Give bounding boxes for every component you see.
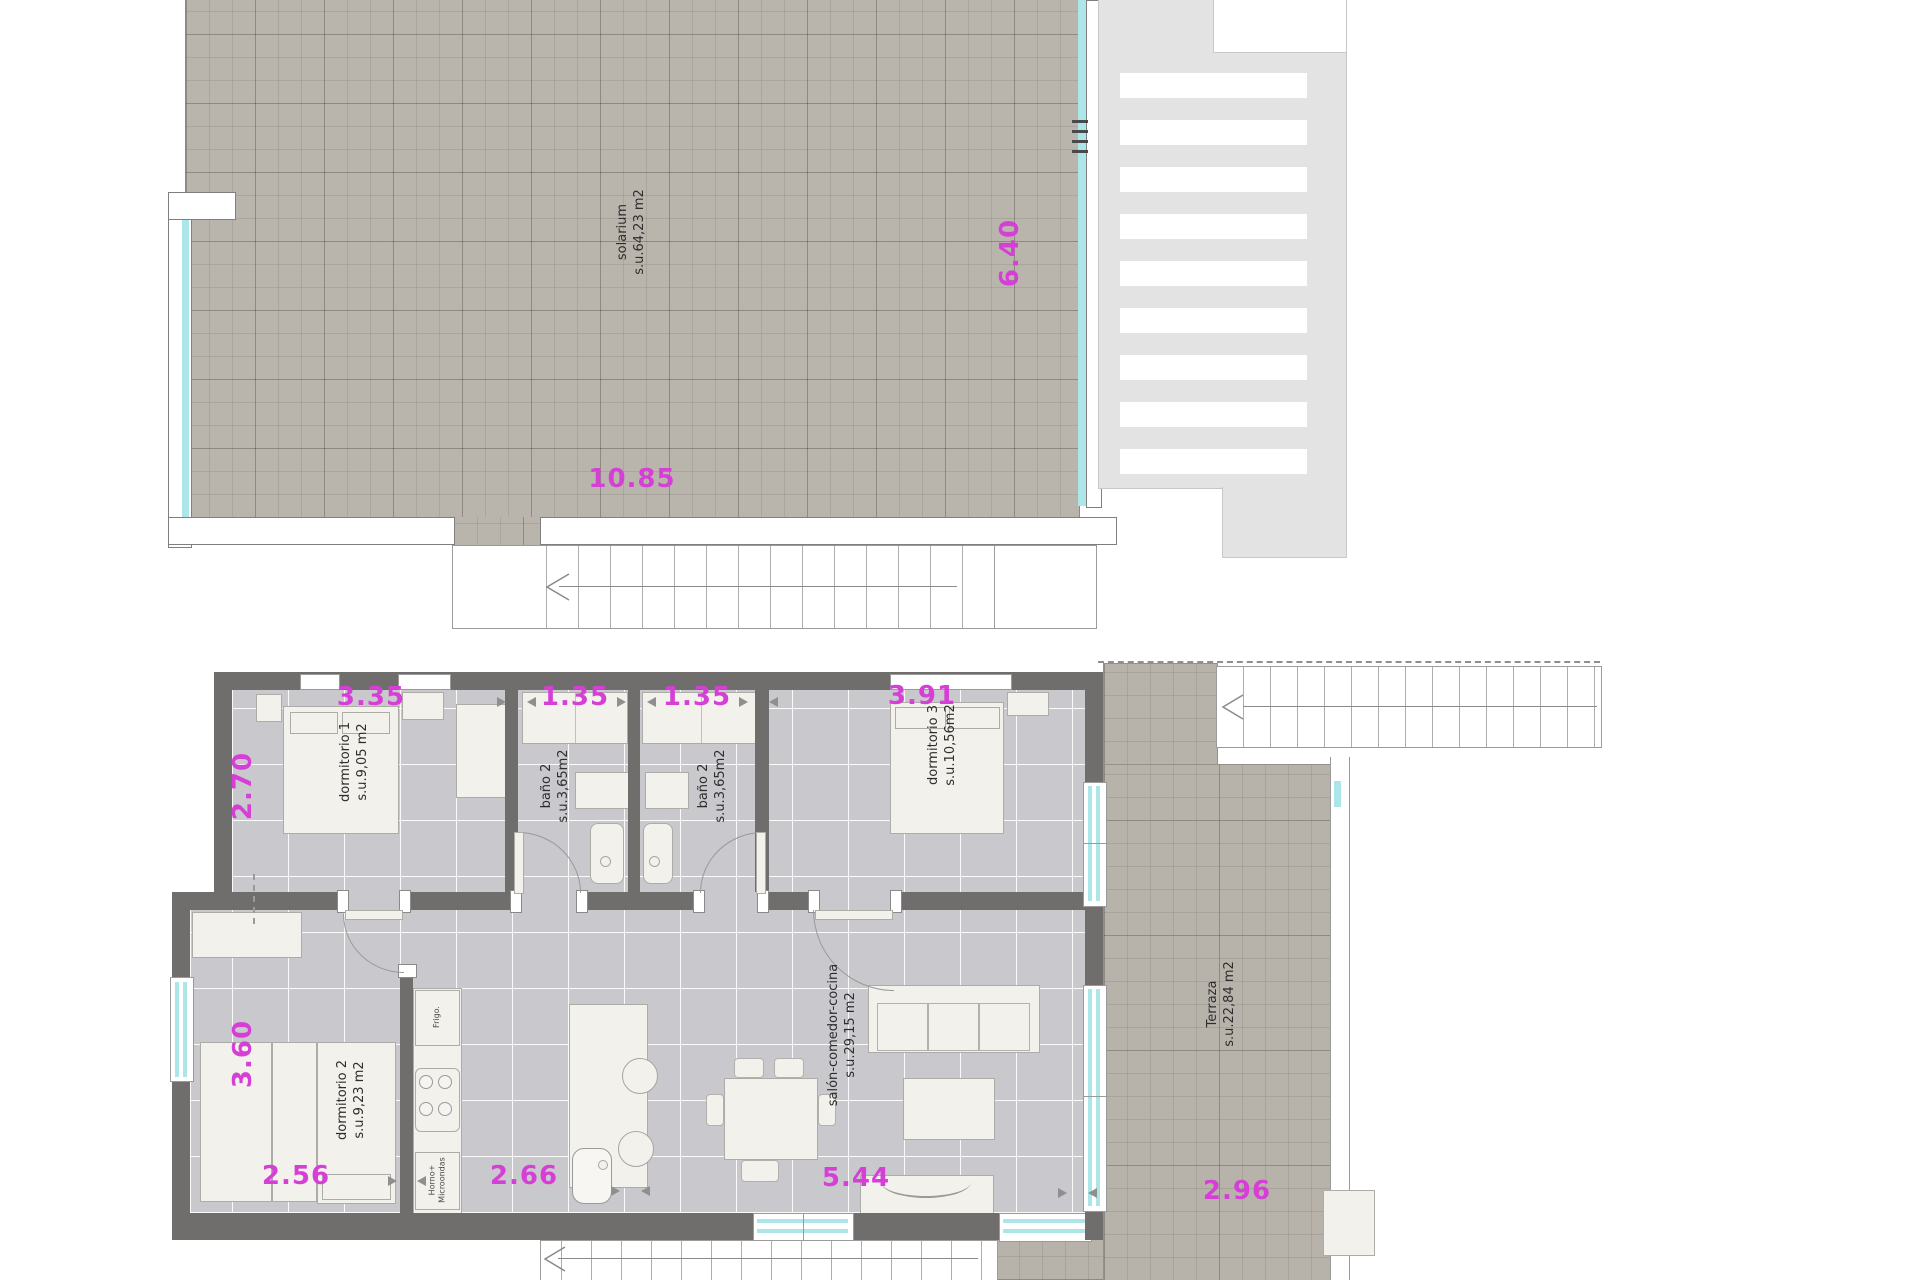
room-area: s.u.10,56m2 bbox=[943, 704, 960, 785]
dim-tick bbox=[739, 697, 748, 707]
living-terrace-window bbox=[1083, 985, 1107, 1212]
bottom-window-living bbox=[999, 1213, 1092, 1242]
terraza-staircase bbox=[1216, 666, 1602, 748]
mid-wall-seg bbox=[580, 892, 700, 910]
bottom-wall-seg bbox=[172, 1213, 753, 1240]
dining-chair bbox=[734, 1058, 764, 1078]
fridge-label: Frigo. bbox=[432, 1006, 442, 1028]
bano1-counter bbox=[575, 772, 629, 809]
dorm1-wardrobe bbox=[456, 704, 506, 798]
pergola-notch bbox=[1213, 0, 1346, 53]
dim-tick bbox=[641, 1186, 650, 1196]
room-name: Terraza bbox=[1205, 961, 1222, 1047]
dim-tick bbox=[1058, 1188, 1067, 1198]
room-label-bano2: baño 2 s.u.3,65m2 bbox=[696, 749, 730, 822]
door-jamb bbox=[693, 890, 705, 913]
left-wall-seg bbox=[172, 910, 190, 977]
room-area: s.u.3,65m2 bbox=[713, 749, 730, 822]
entry-wardrobe bbox=[192, 912, 302, 958]
room-area: s.u.22,84 m2 bbox=[1222, 961, 1239, 1047]
left-window bbox=[170, 977, 194, 1082]
dim-dorm1-height: 2.70 bbox=[228, 752, 258, 820]
solarium-left-notch bbox=[168, 192, 236, 220]
bottom-window bbox=[753, 1213, 854, 1242]
dining-chair bbox=[774, 1058, 804, 1078]
pergola-slats bbox=[1120, 73, 1307, 475]
room-area: s.u.9,23 m2 bbox=[352, 1060, 369, 1140]
top-wall-window bbox=[398, 674, 451, 690]
solarium-right-glazing bbox=[1078, 0, 1086, 506]
stair-arrow-icon bbox=[543, 1246, 567, 1272]
right-wall-seg bbox=[1085, 1210, 1103, 1240]
sofa bbox=[868, 985, 1040, 1053]
mid-wall-seg bbox=[403, 892, 518, 910]
window-glass bbox=[1096, 989, 1100, 1206]
section-mark bbox=[253, 874, 255, 924]
dim-dorm2-width: 2.56 bbox=[262, 1161, 330, 1191]
dim-dorm2-height: 3.60 bbox=[228, 1020, 258, 1088]
window-divider bbox=[1084, 1096, 1106, 1097]
room-label-dorm1: dormitorio 1 s.u.9,05 m2 bbox=[338, 722, 372, 802]
bano2-toilet-button bbox=[649, 856, 660, 867]
tv-curve bbox=[881, 1182, 971, 1198]
dim-salon-width: 5.44 bbox=[822, 1163, 890, 1193]
dorm1-nightstand-right bbox=[402, 692, 444, 720]
dorm2-pillow bbox=[322, 1174, 391, 1200]
glazing-mullion-icon bbox=[1072, 120, 1088, 154]
bano2-door-leaf bbox=[756, 832, 766, 894]
stove-burner bbox=[438, 1102, 452, 1116]
room-name: baño 2 bbox=[539, 749, 556, 822]
bano1-door-leaf bbox=[514, 832, 524, 894]
dim-tick bbox=[417, 1176, 426, 1186]
dining-chair bbox=[706, 1094, 724, 1126]
stair-arrow-icon bbox=[1221, 694, 1245, 720]
dim-tick bbox=[1088, 1188, 1097, 1198]
oven-label-line1: Horno+ bbox=[427, 1157, 437, 1203]
stair-treads bbox=[546, 546, 994, 628]
dim-tick bbox=[647, 697, 656, 707]
room-area: s.u.64,23 m2 bbox=[632, 189, 649, 275]
dim-kitchen-width: 2.66 bbox=[490, 1161, 558, 1191]
room-label-solarium: solarium s.u.64,23 m2 bbox=[615, 189, 649, 275]
bano1-toilet bbox=[590, 823, 624, 884]
balustrade-glass-mark bbox=[1334, 781, 1341, 807]
dorm3-nightstand bbox=[1007, 692, 1049, 716]
stove-burner bbox=[438, 1075, 452, 1089]
sofa-cushion bbox=[877, 1003, 928, 1051]
dorm3-window bbox=[1083, 782, 1107, 907]
window-divider bbox=[1084, 843, 1106, 844]
room-name: dormitorio 2 bbox=[335, 1060, 352, 1140]
bano2-toilet bbox=[643, 823, 673, 884]
dim-solarium-height: 6.40 bbox=[995, 219, 1025, 287]
bottom-wall-seg bbox=[852, 1213, 999, 1240]
right-wall-seg bbox=[1085, 672, 1103, 782]
window-glass bbox=[175, 982, 179, 1077]
room-name: dormitorio 3 bbox=[926, 704, 943, 785]
dorm1-nightstand-left bbox=[256, 694, 282, 722]
stair-arrow-icon bbox=[545, 573, 571, 601]
solarium-bottom-wall-right bbox=[540, 517, 1117, 545]
wall-between-banos bbox=[628, 690, 640, 892]
bano1-toilet-button bbox=[600, 856, 611, 867]
sofa-cushion bbox=[979, 1003, 1030, 1051]
dim-tick bbox=[769, 697, 778, 707]
stair-divider bbox=[994, 546, 995, 628]
room-name: dormitorio 1 bbox=[338, 722, 355, 802]
room-label-dorm3: dormitorio 3 s.u.10,56m2 bbox=[926, 704, 960, 785]
left-wall-seg bbox=[172, 1080, 190, 1213]
mid-wall-seg bbox=[172, 892, 345, 910]
dorm1-door-leaf bbox=[345, 910, 403, 920]
sink-faucet bbox=[598, 1160, 608, 1170]
window-glass bbox=[1003, 1229, 1086, 1233]
coffee-table bbox=[903, 1078, 995, 1140]
dim-tick bbox=[388, 1176, 397, 1186]
room-name: solarium bbox=[615, 189, 632, 275]
room-label-salon: salón-comedor-cocina s.u.29,15 m2 bbox=[826, 964, 860, 1106]
solarium-bottom-wall-left bbox=[168, 517, 455, 545]
stair-direction-line bbox=[559, 586, 957, 587]
stove-burner bbox=[419, 1075, 433, 1089]
mid-wall-seg bbox=[895, 892, 1085, 910]
dining-chair bbox=[741, 1160, 779, 1182]
window-glass bbox=[1003, 1219, 1086, 1223]
dim-terraza-width: 2.96 bbox=[1203, 1176, 1271, 1206]
stair-direction-line bbox=[1243, 706, 1597, 707]
sofa-cushion bbox=[928, 1003, 979, 1051]
lower-staircase bbox=[540, 1240, 998, 1280]
top-wall-window bbox=[300, 674, 340, 690]
room-label-bano1: baño 2 s.u.3,65m2 bbox=[539, 749, 573, 822]
bano2-counter bbox=[645, 772, 689, 809]
pergola-block-tab bbox=[1222, 487, 1347, 558]
stool bbox=[622, 1058, 658, 1094]
room-name: salón-comedor-cocina bbox=[826, 964, 843, 1106]
dorm1-pillow bbox=[290, 712, 338, 734]
wall-kitchen bbox=[400, 973, 413, 1213]
window-divider bbox=[803, 1214, 804, 1241]
solarium-landing-gap bbox=[453, 517, 542, 548]
dim-tick bbox=[611, 1186, 620, 1196]
room-label-dorm2: dormitorio 2 s.u.9,23 m2 bbox=[335, 1060, 369, 1140]
island-sink bbox=[572, 1148, 612, 1204]
floor-plan-canvas: solarium s.u.64,23 m2 10.85 6.40 Terraza… bbox=[0, 0, 1920, 1280]
dim-tick bbox=[617, 697, 626, 707]
dim-bano2-width: 1.35 bbox=[663, 682, 731, 712]
room-area: s.u.3,65m2 bbox=[556, 749, 573, 822]
dim-tick bbox=[527, 697, 536, 707]
window-glass bbox=[1088, 989, 1092, 1206]
dim-dorm1-width: 3.35 bbox=[337, 682, 405, 712]
dining-table bbox=[724, 1078, 818, 1160]
dim-tick bbox=[497, 697, 506, 707]
terraza-step-box bbox=[1323, 1190, 1375, 1256]
stair-treads bbox=[561, 1241, 997, 1280]
oven-label: Horno+ Microondas bbox=[427, 1157, 446, 1203]
window-glass bbox=[183, 982, 187, 1077]
room-area: s.u.9,05 m2 bbox=[355, 722, 372, 802]
right-wall-seg bbox=[1085, 905, 1103, 985]
stove-burner bbox=[419, 1102, 433, 1116]
oven-label-line2: Microondas bbox=[437, 1157, 447, 1203]
stool bbox=[618, 1131, 654, 1167]
stair-direction-line bbox=[558, 1258, 978, 1259]
terraza-floor-below-wall bbox=[996, 1240, 1103, 1280]
dim-dorm3-width: 3.91 bbox=[888, 681, 956, 711]
stair-treads bbox=[1243, 667, 1599, 747]
door-jamb bbox=[576, 890, 588, 913]
terraza-floor-upper bbox=[1103, 663, 1218, 766]
room-area: s.u.29,15 m2 bbox=[843, 964, 860, 1106]
upper-staircase bbox=[452, 545, 1097, 629]
solarium-left-window-glass bbox=[182, 206, 189, 540]
room-name: baño 2 bbox=[696, 749, 713, 822]
room-label-terraza: Terraza s.u.22,84 m2 bbox=[1205, 961, 1239, 1047]
dim-solarium-width: 10.85 bbox=[588, 464, 675, 494]
dim-bano1-width: 1.35 bbox=[541, 682, 609, 712]
dorm3-door-leaf bbox=[815, 910, 893, 920]
